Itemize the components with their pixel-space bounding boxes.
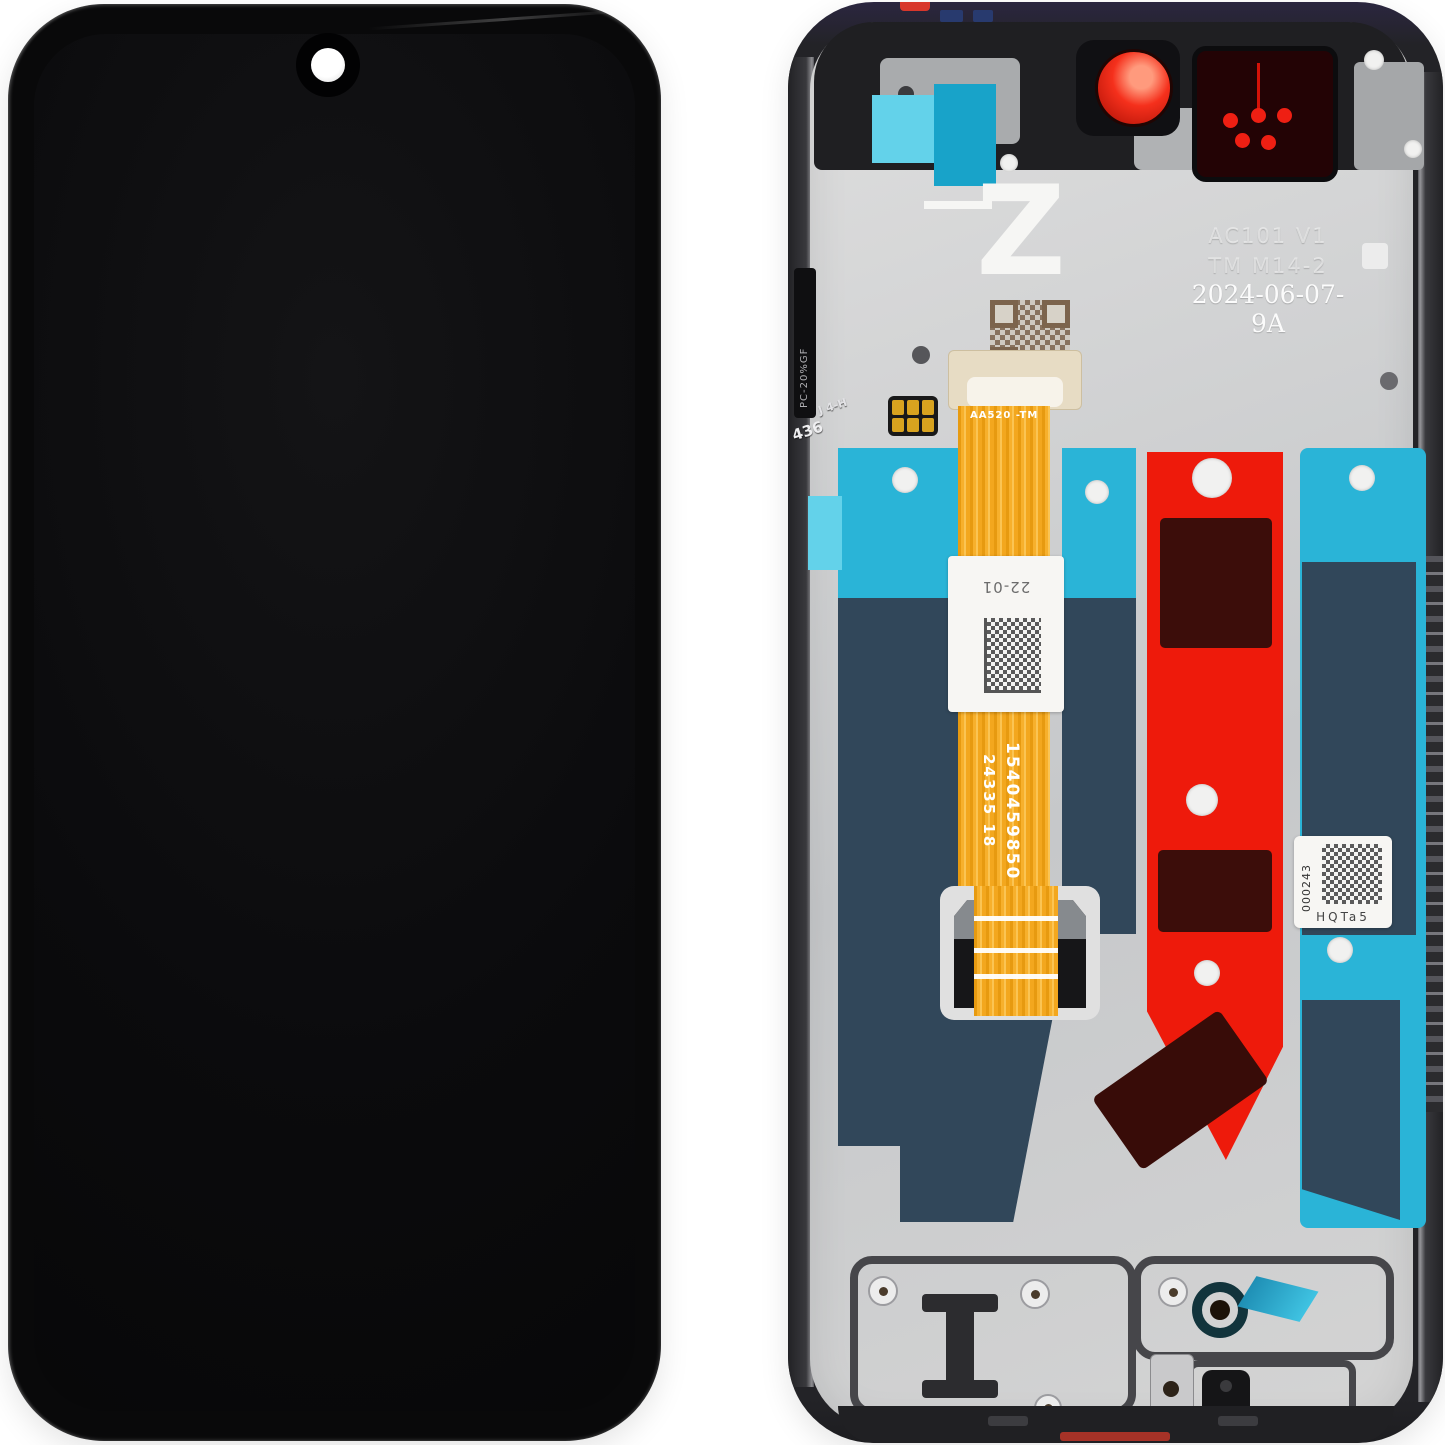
white-square-pad <box>1362 243 1388 269</box>
flex-sticker-datamatrix <box>984 618 1041 693</box>
screw-hole <box>1020 1279 1050 1309</box>
gold-pad <box>907 400 919 415</box>
adhesive-tape-blue-light <box>872 95 936 163</box>
screw-hole-dark <box>1380 372 1398 390</box>
screw-hole <box>868 1276 898 1306</box>
tape-hole <box>1186 784 1218 816</box>
camera-lens-red <box>1095 49 1173 127</box>
tape-hole <box>1327 937 1353 963</box>
adhesive-tape-navy-right-bottom <box>1302 1000 1400 1220</box>
adhesive-tape-cyan-left-tab <box>808 496 842 570</box>
flex-sticker-code: 22-01 <box>948 578 1064 596</box>
front-screen <box>34 34 635 1411</box>
gold-pad <box>907 418 919 433</box>
microphone-hole <box>1210 1300 1230 1320</box>
bracket-screw <box>1163 1381 1179 1397</box>
bottom-port-slot <box>988 1416 1028 1426</box>
gold-pad <box>922 400 934 415</box>
shield-code-line2: TM M14-2 <box>1188 254 1348 278</box>
tape-hole <box>1194 960 1220 986</box>
flex-stiffener-stripe <box>974 974 1058 979</box>
flex-stiffener-stripe <box>974 916 1058 921</box>
receiver-mesh-module <box>1192 46 1338 182</box>
connector-cutout <box>940 886 1100 1020</box>
product-photo: 436 J 4-H PC-20%GF <box>0 0 1445 1445</box>
adhesive-tape-cyan-mid <box>1062 448 1136 600</box>
component-hole <box>1220 1380 1232 1392</box>
side-material-marking: PC-20%GF <box>799 278 810 408</box>
serial-label: 000243 HQTa5 <box>1294 836 1392 928</box>
front-assembly <box>8 4 661 1441</box>
screw-hole-dark <box>912 346 930 364</box>
tape-hole <box>1349 465 1375 491</box>
main-flex-beige <box>948 350 1082 410</box>
gold-pad <box>892 418 904 433</box>
tape-hole <box>1085 480 1109 504</box>
frame-top-red-tab <box>900 2 930 11</box>
gold-pad <box>892 400 904 415</box>
flex-over-connector <box>974 886 1058 1016</box>
serial-label-code: HQTa5 <box>1294 910 1392 924</box>
mesh-red-dot <box>1261 135 1276 150</box>
bottom-frame-bar <box>838 1406 1394 1443</box>
screw-hole <box>1158 1277 1188 1307</box>
tape-hole <box>892 467 918 493</box>
frame-antenna-window <box>973 10 993 22</box>
punch-hole-camera-lens <box>311 48 345 82</box>
z-logo: Z <box>976 170 1066 294</box>
screw-hole <box>1404 140 1422 158</box>
shield-date-code: 2024-06-07-9A <box>1178 280 1358 338</box>
flex-stiffener-stripe <box>974 948 1058 953</box>
mesh-red-dot <box>1235 133 1250 148</box>
battery-window-upper <box>1160 518 1272 648</box>
i-beam-cutout <box>922 1380 998 1398</box>
serial-label-datamatrix <box>1322 844 1382 904</box>
tape-hole <box>1192 458 1232 498</box>
serial-label-number: 000243 <box>1300 842 1313 912</box>
mesh-red-dot <box>1251 108 1266 123</box>
i-beam-cutout <box>946 1302 974 1388</box>
gold-pad <box>922 418 934 433</box>
gold-contact-block <box>888 396 938 436</box>
qr-finder <box>1042 300 1070 328</box>
main-flex-label-area <box>967 377 1063 407</box>
rear-assembly: 436 J 4-H PC-20%GF <box>788 2 1443 1443</box>
side-material-tab: PC-20%GF <box>794 268 816 418</box>
screw-hole <box>1364 50 1384 70</box>
frame-antenna-window <box>940 10 963 22</box>
mesh-red-dot <box>1223 113 1238 128</box>
bottom-port-slot <box>1218 1416 1258 1426</box>
bottom-red-gasket <box>1060 1432 1170 1441</box>
battery-window-lower <box>1158 850 1272 932</box>
shield-code-line1: AC101 V1 <box>1188 224 1348 248</box>
flex-sticker: 22-01 <box>948 556 1064 712</box>
qr-finder <box>990 300 1018 328</box>
adhesive-tape-navy-mid <box>1062 598 1136 934</box>
mesh-red-dot <box>1277 108 1292 123</box>
screen-top-glare <box>368 9 638 31</box>
flex-cable-code: AA520 -TM <box>970 410 1040 421</box>
